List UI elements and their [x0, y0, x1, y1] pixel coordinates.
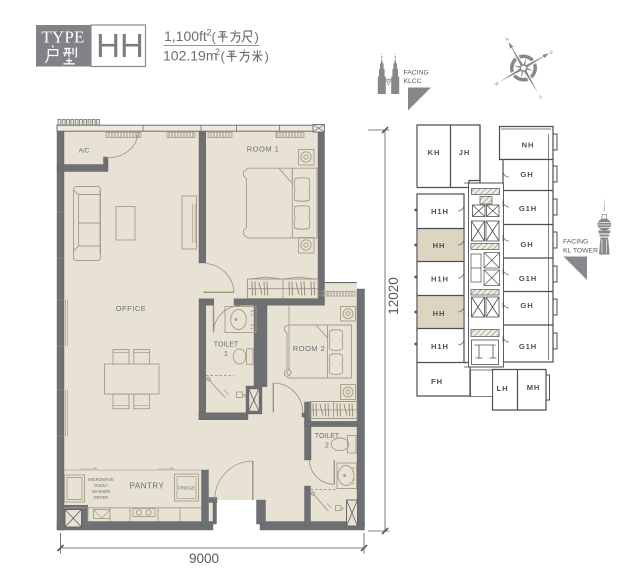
svg-text:KLCC: KLCC — [404, 78, 422, 85]
svg-text:H1H: H1H — [431, 342, 449, 351]
svg-text:G1H: G1H — [519, 274, 537, 283]
svg-text:DRYER: DRYER — [94, 495, 109, 500]
svg-text:A/C: A/C — [79, 148, 90, 155]
svg-text:GH: GH — [520, 170, 533, 179]
svg-text:H1H: H1H — [431, 275, 449, 284]
svg-text:1,100ft: 1,100ft — [164, 28, 207, 44]
svg-text:NH: NH — [522, 141, 535, 150]
svg-text:2: 2 — [215, 47, 220, 57]
svg-text:HH: HH — [433, 241, 446, 250]
svg-text:KL TOWER: KL TOWER — [563, 248, 598, 255]
svg-text:OVEN /: OVEN / — [94, 483, 109, 488]
svg-text:ROOM 2: ROOM 2 — [293, 344, 326, 353]
svg-text:ROOM 1: ROOM 1 — [247, 145, 280, 154]
svg-text:TYPE: TYPE — [41, 28, 84, 47]
svg-text:FACING: FACING — [563, 239, 588, 246]
svg-text:(: ( — [221, 49, 226, 64]
svg-text:JH: JH — [459, 148, 471, 157]
svg-text:FRIDGE: FRIDGE — [178, 486, 195, 491]
svg-text:MICROWAVE: MICROWAVE — [88, 477, 114, 482]
svg-text:102.19m: 102.19m — [163, 48, 217, 64]
svg-text:FACING: FACING — [404, 70, 429, 77]
svg-text:LH: LH — [497, 384, 509, 393]
svg-text:(: ( — [212, 30, 217, 45]
svg-text:OFFICE: OFFICE — [116, 304, 147, 313]
svg-text:GH: GH — [520, 240, 533, 249]
svg-text:1: 1 — [224, 351, 228, 358]
svg-text:HH: HH — [433, 309, 446, 318]
svg-text:): ) — [255, 30, 259, 45]
svg-text:PANTRY: PANTRY — [130, 482, 165, 491]
svg-text:G1H: G1H — [519, 204, 537, 213]
svg-text:12020: 12020 — [386, 277, 401, 315]
svg-text:FH: FH — [431, 377, 443, 386]
svg-text:MH: MH — [527, 383, 541, 392]
svg-text:H1H: H1H — [431, 207, 449, 216]
svg-text:G1H: G1H — [519, 342, 537, 351]
svg-text:): ) — [265, 49, 269, 64]
svg-text:HH: HH — [96, 27, 144, 64]
svg-text:2: 2 — [325, 443, 329, 450]
svg-text:KH: KH — [428, 148, 441, 157]
svg-text:GH: GH — [520, 301, 533, 310]
svg-text:WASHER: WASHER — [92, 489, 110, 494]
svg-text:9000: 9000 — [189, 551, 219, 566]
svg-text:TOILET: TOILET — [214, 342, 239, 349]
